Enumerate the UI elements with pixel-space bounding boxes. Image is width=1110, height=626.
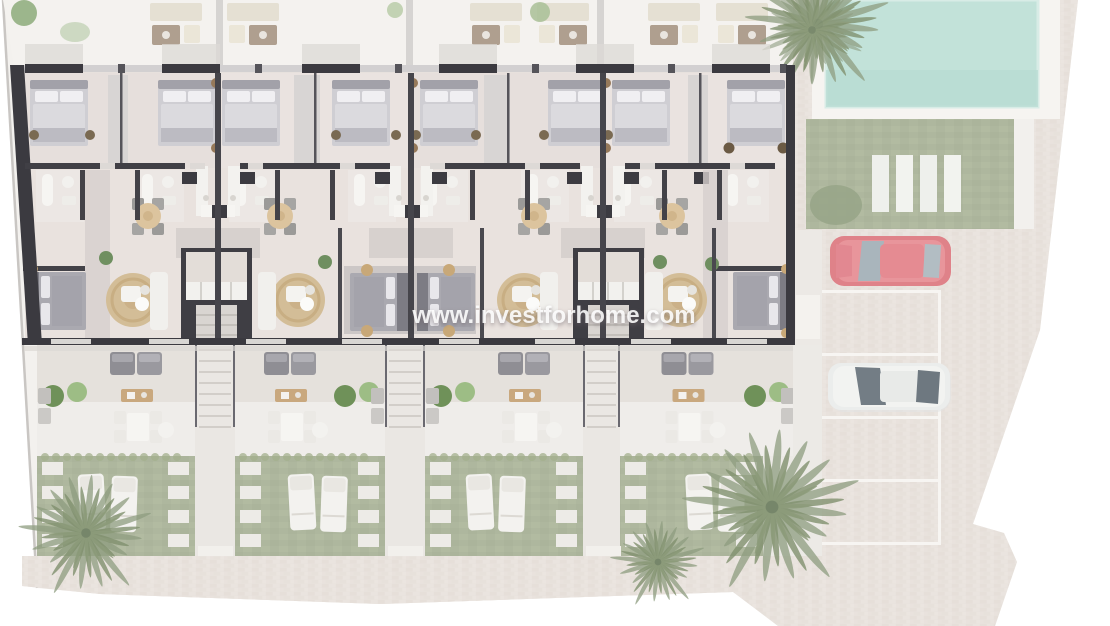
svg-text:www.investforhome.com: www.investforhome.com	[411, 302, 695, 329]
